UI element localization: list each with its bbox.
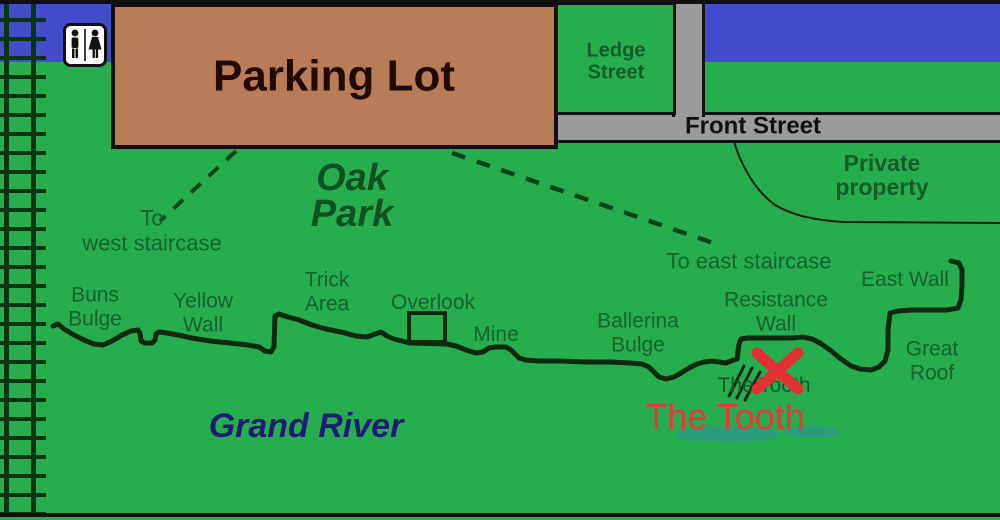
crag-label-mine: Mine — [473, 323, 519, 347]
ledge-street-road — [672, 0, 705, 117]
crag-label-buns-bulge: Buns Bulge — [68, 283, 122, 330]
crag-label-east-wall: East Wall — [861, 268, 949, 292]
oak-park-climbing-map: Parking Lot Ledge Street Front Street Pr… — [0, 0, 1000, 520]
crag-label-resistance-wall: Resistance Wall — [724, 288, 828, 335]
the-tooth-river-label: The Tooth — [645, 397, 804, 437]
front-street-label: Front Street — [685, 114, 821, 141]
private-property-label: Private property — [835, 151, 928, 199]
railroad-track-icon — [0, 3, 46, 517]
map-top-border — [0, 0, 1000, 4]
overlook-square — [409, 313, 445, 342]
crag-label-overlook: Overlook — [391, 291, 475, 315]
parking-lot-label: Parking Lot — [213, 51, 455, 100]
crag-label-ballerina-bulge: Ballerina Bulge — [597, 309, 679, 356]
east-staircase-path — [452, 153, 722, 246]
crag-label-great-roof: Great Roof — [906, 337, 959, 384]
map-bottom-border — [0, 513, 1000, 517]
ledge-street-label: Ledge Street — [587, 40, 646, 85]
crag-label-trick-area: Trick Area — [305, 268, 350, 315]
to-east-staircase-label: To east staircase — [666, 250, 831, 275]
crag-label-yellow-wall: Yellow Wall — [173, 289, 233, 336]
the-tooth-label: The Tooth — [717, 374, 810, 398]
to-west-staircase-label: To west staircase — [82, 206, 221, 255]
oak-park-label: Oak Park — [311, 160, 393, 232]
grand-river-label: Grand River — [209, 407, 404, 445]
